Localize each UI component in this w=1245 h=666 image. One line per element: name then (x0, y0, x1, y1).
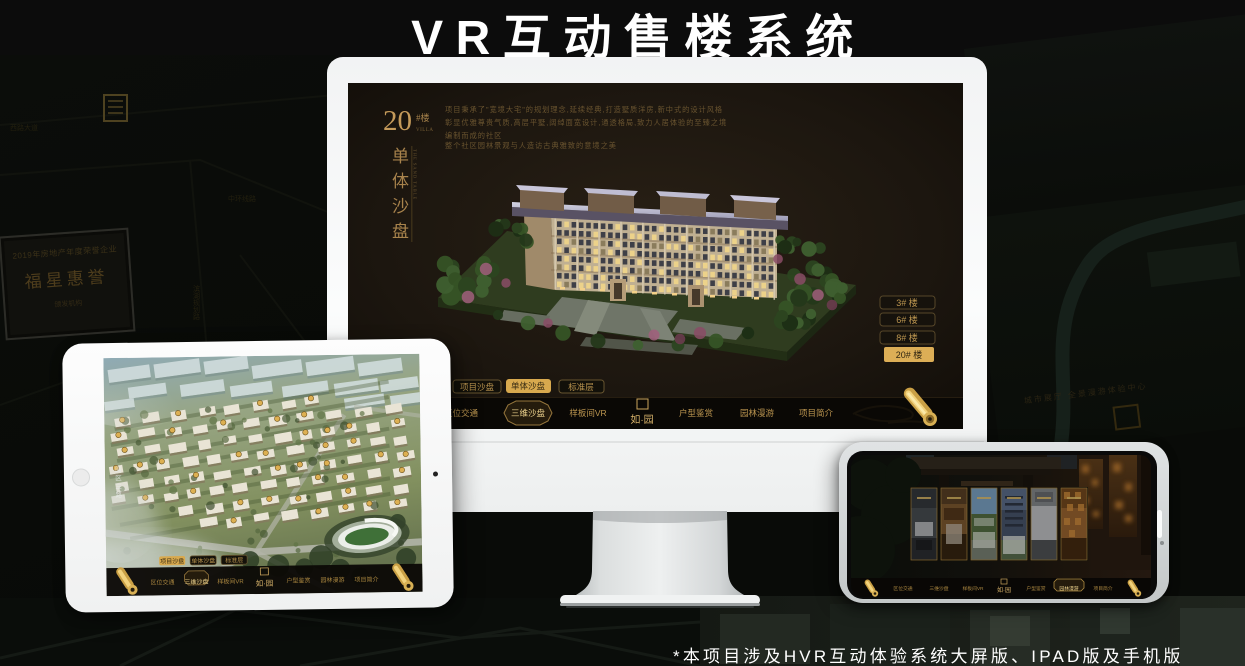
svg-text:三维沙盘: 三维沙盘 (511, 408, 546, 418)
svg-text:户型鉴赏: 户型鉴赏 (679, 408, 713, 418)
svg-text:整个社区园林景观与人造访古典雅致的意境之美: 整个社区园林景观与人造访古典雅致的意境之美 (445, 141, 617, 150)
svg-text:20# 楼: 20# 楼 (896, 349, 923, 360)
svg-text:区位交通: 区位交通 (893, 585, 912, 592)
svg-text:样板间VR: 样板间VR (962, 585, 984, 592)
svg-text:园林漫游: 园林漫游 (740, 408, 775, 418)
svg-text:标准层: 标准层 (225, 556, 243, 564)
svg-text:园林漫游: 园林漫游 (1059, 585, 1078, 592)
svg-text:项目沙盘: 项目沙盘 (460, 382, 495, 392)
svg-text:样板间VR: 样板间VR (569, 408, 606, 418)
svg-text:VILLA: VILLA (416, 128, 434, 133)
svg-text:编制而成的社区: 编制而成的社区 (445, 131, 502, 140)
svg-text:沙: 沙 (392, 197, 409, 216)
svg-text:6# 楼: 6# 楼 (896, 314, 918, 325)
svg-text:标准层: 标准层 (568, 382, 594, 392)
svg-text:3# 楼: 3# 楼 (896, 297, 918, 308)
svg-text:单: 单 (392, 147, 409, 166)
svg-text:盘: 盘 (392, 222, 409, 241)
svg-text:20: 20 (383, 105, 412, 137)
svg-text:西路大道: 西路大道 (10, 123, 38, 132)
svg-text:如·园: 如·园 (256, 578, 274, 588)
svg-text:体: 体 (392, 172, 409, 191)
svg-text:户型鉴赏: 户型鉴赏 (1026, 585, 1045, 592)
svg-text:项目秉承了"宽境大宅"的规划理念,延续经典,打造墅质洋房,新: 项目秉承了"宽境大宅"的规划理念,延续经典,打造墅质洋房,新中式的设计风格 (445, 105, 723, 114)
svg-text:#楼: #楼 (416, 112, 430, 123)
svg-text:如·园: 如·园 (997, 586, 1011, 594)
svg-text:THE SAND TABLE: THE SAND TABLE (413, 149, 418, 200)
svg-text:彰显优雅尊贵气质,高层平墅,阔绰面宽设计,通透格局,致力人居: 彰显优雅尊贵气质,高层平墅,阔绰面宽设计,通透格局,致力人居体验的至臻之境 (445, 118, 727, 127)
svg-text:项目简介: 项目简介 (799, 408, 834, 418)
svg-text:8# 楼: 8# 楼 (896, 332, 918, 343)
svg-text:三维沙盘: 三维沙盘 (929, 585, 948, 592)
svg-text:滨湖规划路: 滨湖规划路 (193, 284, 201, 321)
svg-text:城市展厅 全景漫游体验中心: 城市展厅 全景漫游体验中心 (1023, 380, 1148, 405)
svg-text:中环线路: 中环线路 (228, 194, 256, 203)
svg-text:单体沙盘: 单体沙盘 (511, 381, 546, 391)
svg-text:如·园: 如·园 (630, 413, 653, 426)
svg-text:项目简介: 项目简介 (1093, 585, 1112, 592)
